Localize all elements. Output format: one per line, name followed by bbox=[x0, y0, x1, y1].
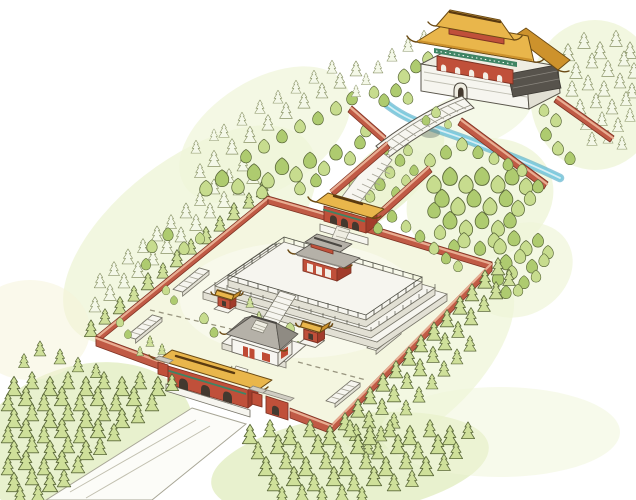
lower-gate-left-pier bbox=[158, 362, 168, 377]
lower-gate-right-pier bbox=[252, 392, 262, 407]
gate-tower bbox=[407, 10, 570, 109]
tomb-complex-illustration bbox=[0, 0, 636, 500]
illustration-page bbox=[0, 0, 636, 500]
